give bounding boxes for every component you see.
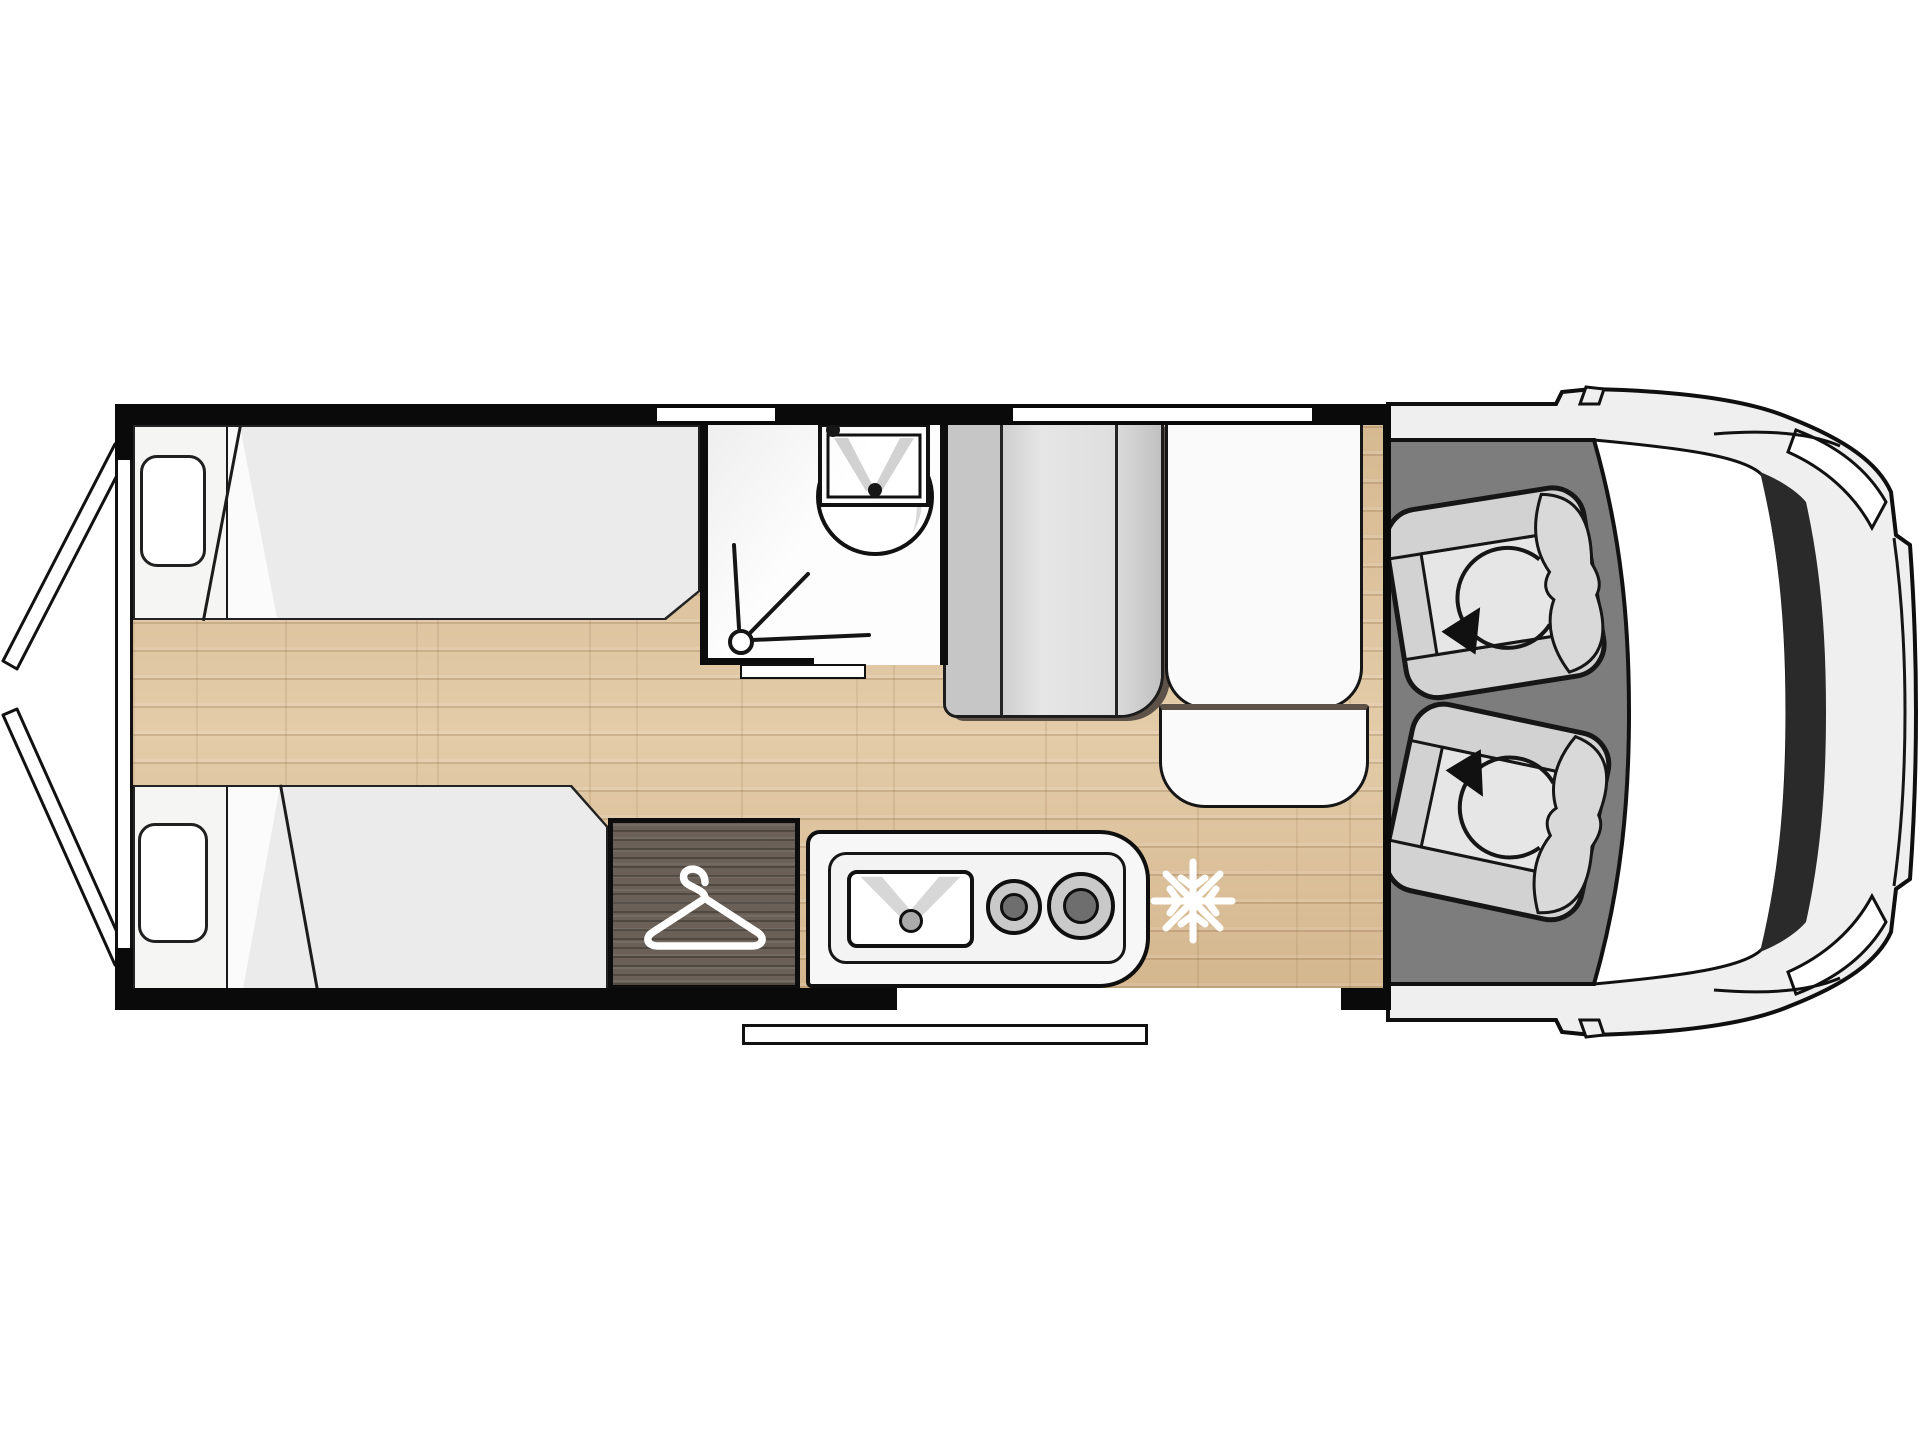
rear-door-bottom-panel: [3, 709, 129, 965]
shower-drain-icon: [724, 533, 874, 658]
bench-seat-back: [1165, 420, 1363, 710]
rear-corner-bottom: [115, 948, 133, 1010]
window-top-left: [657, 408, 775, 421]
bed-bottom-pillow: [138, 823, 208, 943]
rear-doorway: [115, 404, 133, 1010]
washbasin-icon: [808, 418, 940, 568]
wall-bottom-left: [115, 988, 897, 1010]
cab-seat-top: [1381, 483, 1613, 703]
hanger-icon: [635, 851, 775, 956]
bed-top-mattress: [228, 425, 700, 620]
bathroom-sliding-door: [740, 664, 866, 679]
rear-corner-top: [115, 404, 133, 460]
tall-cabinet: [943, 422, 1164, 718]
cabinet-panel-right: [1115, 425, 1164, 715]
window-top-right: [1013, 408, 1312, 421]
wardrobe-closet: [608, 818, 800, 990]
cabinet-panel-middle: [1000, 425, 1115, 715]
kitchen-sink: [847, 870, 974, 948]
rear-doors-open: [3, 444, 129, 965]
kitchen-counter: [806, 830, 1150, 988]
cabinet-panel-left: [946, 425, 1000, 715]
sink-drain: [899, 909, 923, 933]
bench-seat-cushion: [1159, 704, 1369, 808]
stove-burner-small-center: [1000, 893, 1028, 921]
bed-top-pillow: [140, 455, 206, 567]
campervan-floorplan: [0, 0, 1920, 1440]
side-mirror-bottom-icon: [1580, 1020, 1604, 1037]
snowflake-icon: [1149, 857, 1237, 945]
side-mirror-top-icon: [1580, 387, 1604, 404]
stove-burner-large-center: [1063, 888, 1099, 924]
rear-door-top-panel: [3, 444, 129, 669]
entry-step: [742, 1024, 1148, 1045]
cab-partition-wall: [1383, 404, 1391, 1010]
cab-seat-bottom: [1380, 698, 1620, 926]
bathroom: [700, 425, 948, 665]
